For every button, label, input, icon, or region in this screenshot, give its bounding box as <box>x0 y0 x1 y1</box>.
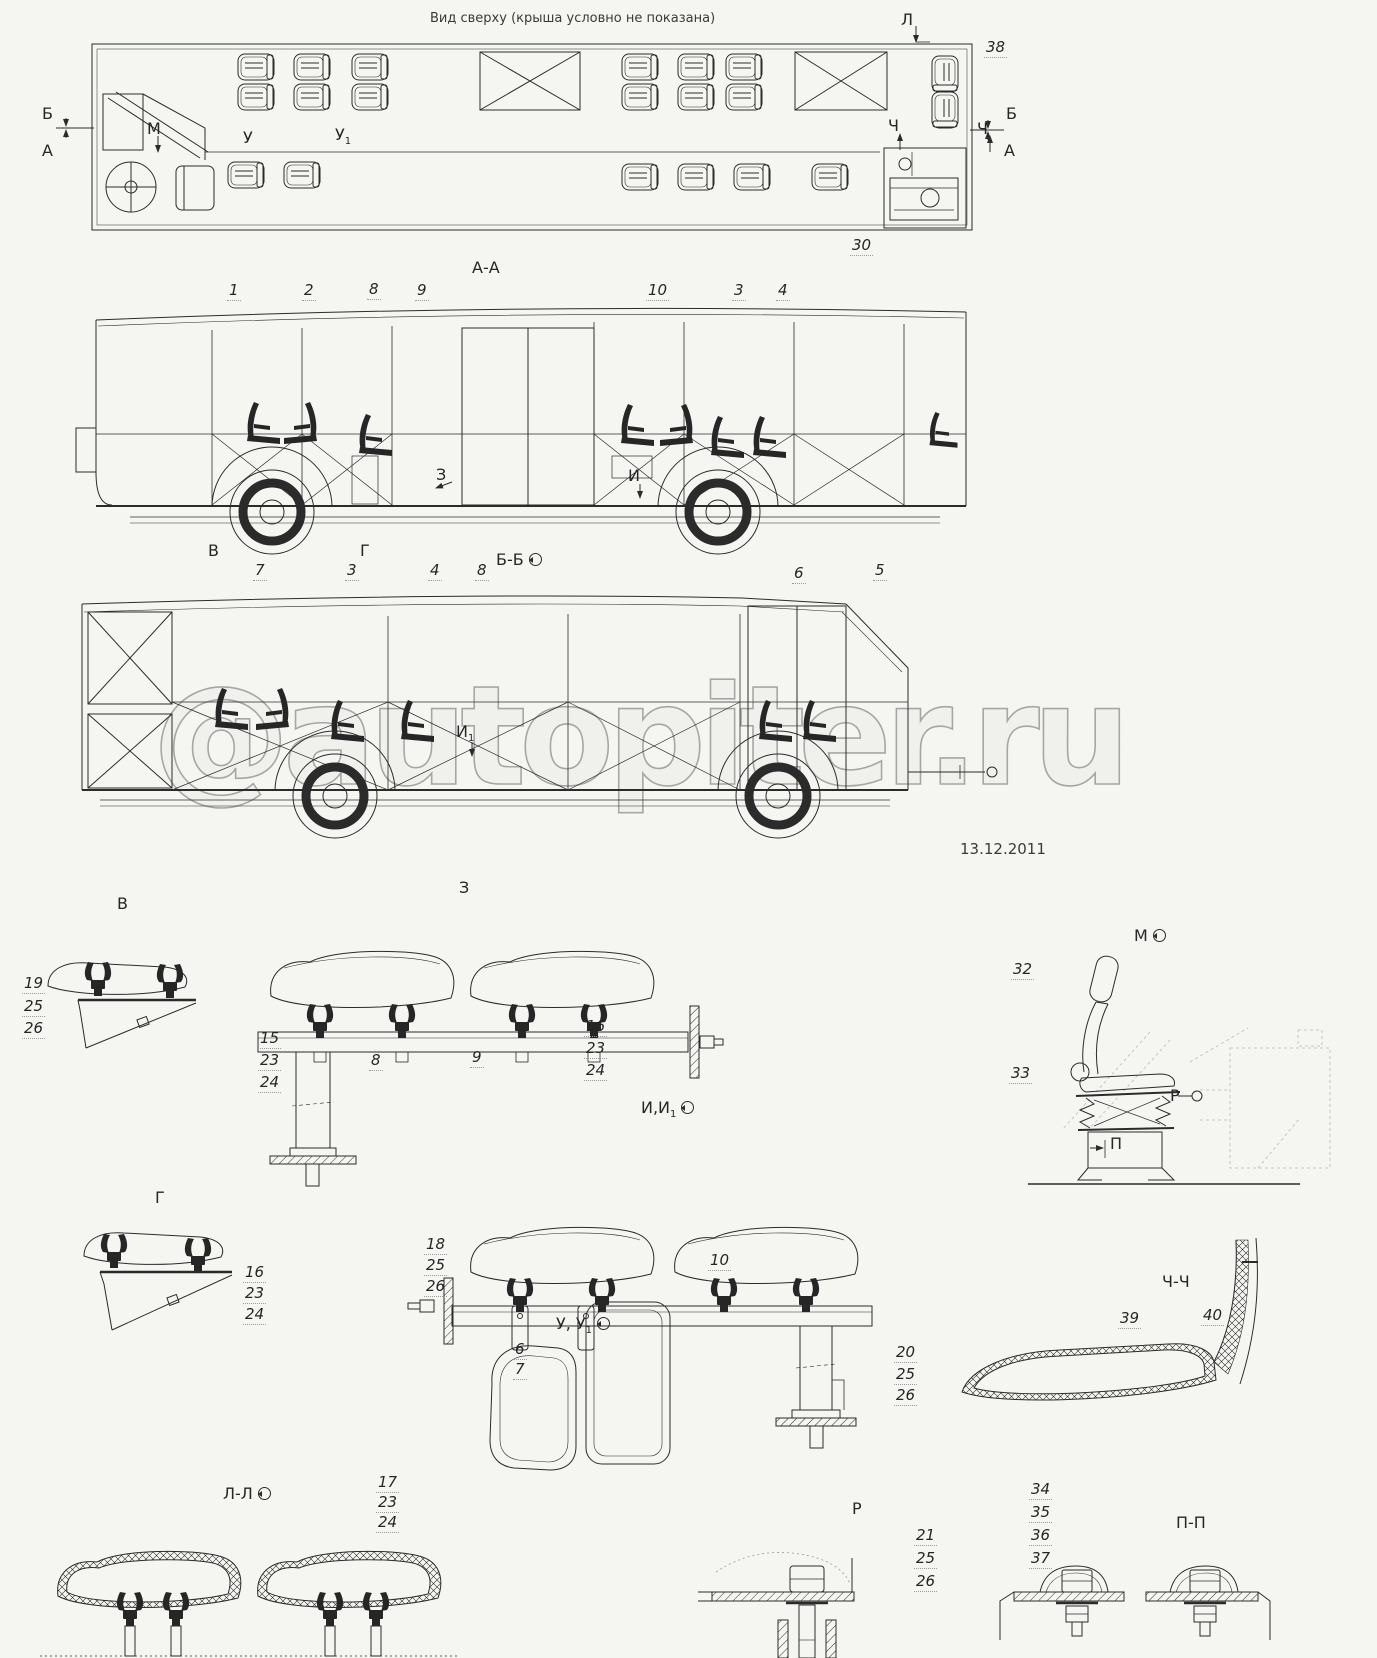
section-pp-title: П-П <box>1176 1515 1206 1531</box>
section-marker-ch-right: Ч <box>977 121 988 137</box>
section-chch-title: Ч-Ч <box>1162 1274 1190 1290</box>
part-number-r-21: 21 <box>914 1528 937 1546</box>
part-number-v-19: 19 <box>22 976 45 994</box>
part-number-aa-4: 4 <box>776 283 790 301</box>
detail-marker-g: Г <box>360 543 370 559</box>
part-number-30: 30 <box>850 238 873 256</box>
detail-marker-p: П <box>1110 1136 1122 1152</box>
section-marker-b-right: Б <box>1006 106 1017 122</box>
section-marker-b-left: Б <box>42 106 53 122</box>
part-number-ll-24: 24 <box>376 1515 399 1533</box>
detail-z-title: З <box>459 880 469 896</box>
part-number-bb-6: 6 <box>792 566 806 584</box>
rotated-view-icon <box>258 1487 271 1500</box>
blueprint-page: @autopiter.ru 13.12.2011 <box>0 0 1377 1658</box>
part-number-z-15: 15 <box>258 1031 281 1049</box>
part-number-aa-2: 2 <box>302 283 316 301</box>
section-ll-title: Л-Л <box>223 1486 271 1502</box>
part-number-i-25: 25 <box>424 1258 447 1276</box>
part-number-m-33: 33 <box>1009 1066 1032 1084</box>
part-number-pp-35: 35 <box>1029 1505 1052 1523</box>
part-number-i-20: 20 <box>894 1345 917 1363</box>
part-number-pp-36: 36 <box>1029 1528 1052 1546</box>
part-number-m-32: 32 <box>1011 962 1034 980</box>
rotated-view-icon <box>681 1101 694 1114</box>
part-number-v-26: 26 <box>22 1021 45 1039</box>
view-marker-m: М <box>147 121 161 137</box>
part-number-v-25: 25 <box>22 999 45 1017</box>
detail-m-title: М <box>1134 928 1166 944</box>
part-number-z-23b: 23 <box>584 1041 607 1059</box>
part-number-38: 38 <box>984 40 1007 58</box>
part-number-bb-4: 4 <box>428 563 442 581</box>
part-number-r-26: 26 <box>914 1574 937 1592</box>
part-number-i-26b: 26 <box>894 1388 917 1406</box>
part-number-z-8: 8 <box>369 1053 383 1071</box>
part-number-pp-37: 37 <box>1029 1551 1052 1569</box>
rotated-view-icon <box>1153 929 1166 942</box>
part-number-aa-10: 10 <box>646 283 669 301</box>
part-number-bb-7: 7 <box>253 563 267 581</box>
part-number-chch-39: 39 <box>1118 1311 1141 1329</box>
detail-v-drawing <box>48 962 196 1048</box>
part-number-aa-9: 9 <box>415 283 429 301</box>
part-number-ll-23: 23 <box>376 1495 399 1513</box>
part-number-pp-34: 34 <box>1029 1482 1052 1500</box>
part-number-aa-1: 1 <box>227 283 241 301</box>
detail-ll-drawing <box>40 1551 460 1656</box>
detail-marker-i: И <box>628 468 640 484</box>
part-number-u-7: 7 <box>513 1362 527 1380</box>
detail-marker-z: З <box>436 467 446 483</box>
detail-g-drawing <box>84 1233 232 1330</box>
rotated-view-icon <box>529 553 542 566</box>
part-number-i-18: 18 <box>424 1237 447 1255</box>
view-marker-u1: У1 <box>335 127 351 143</box>
part-number-u-6: 6 <box>513 1342 527 1360</box>
part-number-z-9: 9 <box>470 1050 484 1068</box>
detail-marker-i1: И1 <box>456 724 474 740</box>
top-view-drawing <box>56 26 1004 230</box>
section-bb-drawing <box>82 596 997 838</box>
section-marker-a-right: А <box>1004 143 1015 159</box>
part-number-i-10: 10 <box>708 1253 731 1271</box>
part-number-z-16: 16 <box>584 1019 607 1037</box>
rotated-view-icon <box>597 1317 610 1330</box>
part-number-g-23: 23 <box>243 1286 266 1304</box>
part-number-z-24: 24 <box>258 1075 281 1093</box>
detail-ii1-title: И,И1 <box>641 1100 694 1116</box>
part-number-aa-3: 3 <box>732 283 746 301</box>
detail-z-drawing <box>258 951 723 1186</box>
detail-r-drawing <box>698 1552 854 1658</box>
detail-v-title: В <box>117 896 128 912</box>
detail-marker-r: Р <box>1170 1088 1180 1104</box>
section-aa-drawing <box>76 308 966 554</box>
section-aa-title: А-А <box>472 260 500 276</box>
part-number-ll-17: 17 <box>376 1475 399 1493</box>
detail-uu1-title: У, У1 <box>556 1316 610 1332</box>
section-marker-l: Л <box>901 12 913 28</box>
view-marker-u: У <box>243 130 253 146</box>
detail-m-drawing <box>1028 954 1330 1184</box>
part-number-i-26: 26 <box>424 1279 447 1297</box>
part-number-bb-8: 8 <box>475 563 489 581</box>
drawing-linework <box>0 0 1377 1658</box>
detail-pp-drawing <box>1000 1566 1270 1640</box>
part-number-chch-40: 40 <box>1201 1308 1224 1326</box>
part-number-bb-5: 5 <box>873 563 887 581</box>
top-view-title: Вид сверху (крыша условно не показана) <box>430 12 715 25</box>
detail-i-drawing <box>408 1227 872 1448</box>
part-number-z-24b: 24 <box>584 1063 607 1081</box>
part-number-i-25b: 25 <box>894 1367 917 1385</box>
part-number-aa-8: 8 <box>367 282 381 300</box>
part-number-g-16: 16 <box>243 1265 266 1283</box>
part-number-z-23: 23 <box>258 1053 281 1071</box>
detail-g-title: Г <box>155 1190 165 1206</box>
detail-r-title: Р <box>852 1501 862 1517</box>
section-marker-a-left: А <box>42 143 53 159</box>
part-number-g-24: 24 <box>243 1307 266 1325</box>
detail-marker-v: В <box>208 543 219 559</box>
section-bb-title: Б-Б <box>496 552 542 568</box>
section-marker-ch-left: Ч <box>888 118 899 134</box>
part-number-r-25: 25 <box>914 1551 937 1569</box>
part-number-bb-3: 3 <box>345 563 359 581</box>
